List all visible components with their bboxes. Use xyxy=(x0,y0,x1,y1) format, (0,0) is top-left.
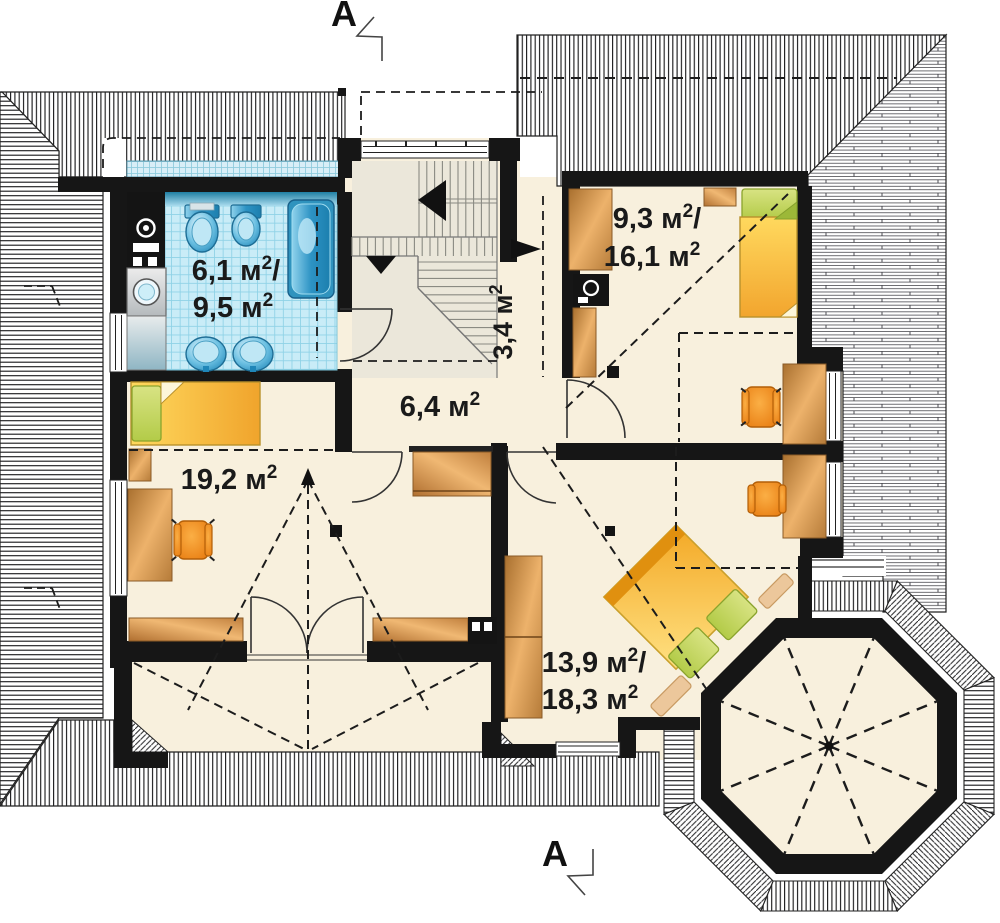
svg-text:16,1 м2: 16,1 м2 xyxy=(604,239,701,273)
svg-text:6,4 м2: 6,4 м2 xyxy=(400,389,480,423)
svg-text:18,3 м2: 18,3 м2 xyxy=(542,682,639,716)
svg-text:A: A xyxy=(331,0,357,34)
svg-text:19,2 м2: 19,2 м2 xyxy=(181,462,278,496)
svg-text:A: A xyxy=(542,833,568,874)
svg-text:3,4 м2: 3,4 м2 xyxy=(486,284,518,359)
svg-text:9,5 м2: 9,5 м2 xyxy=(193,290,273,324)
